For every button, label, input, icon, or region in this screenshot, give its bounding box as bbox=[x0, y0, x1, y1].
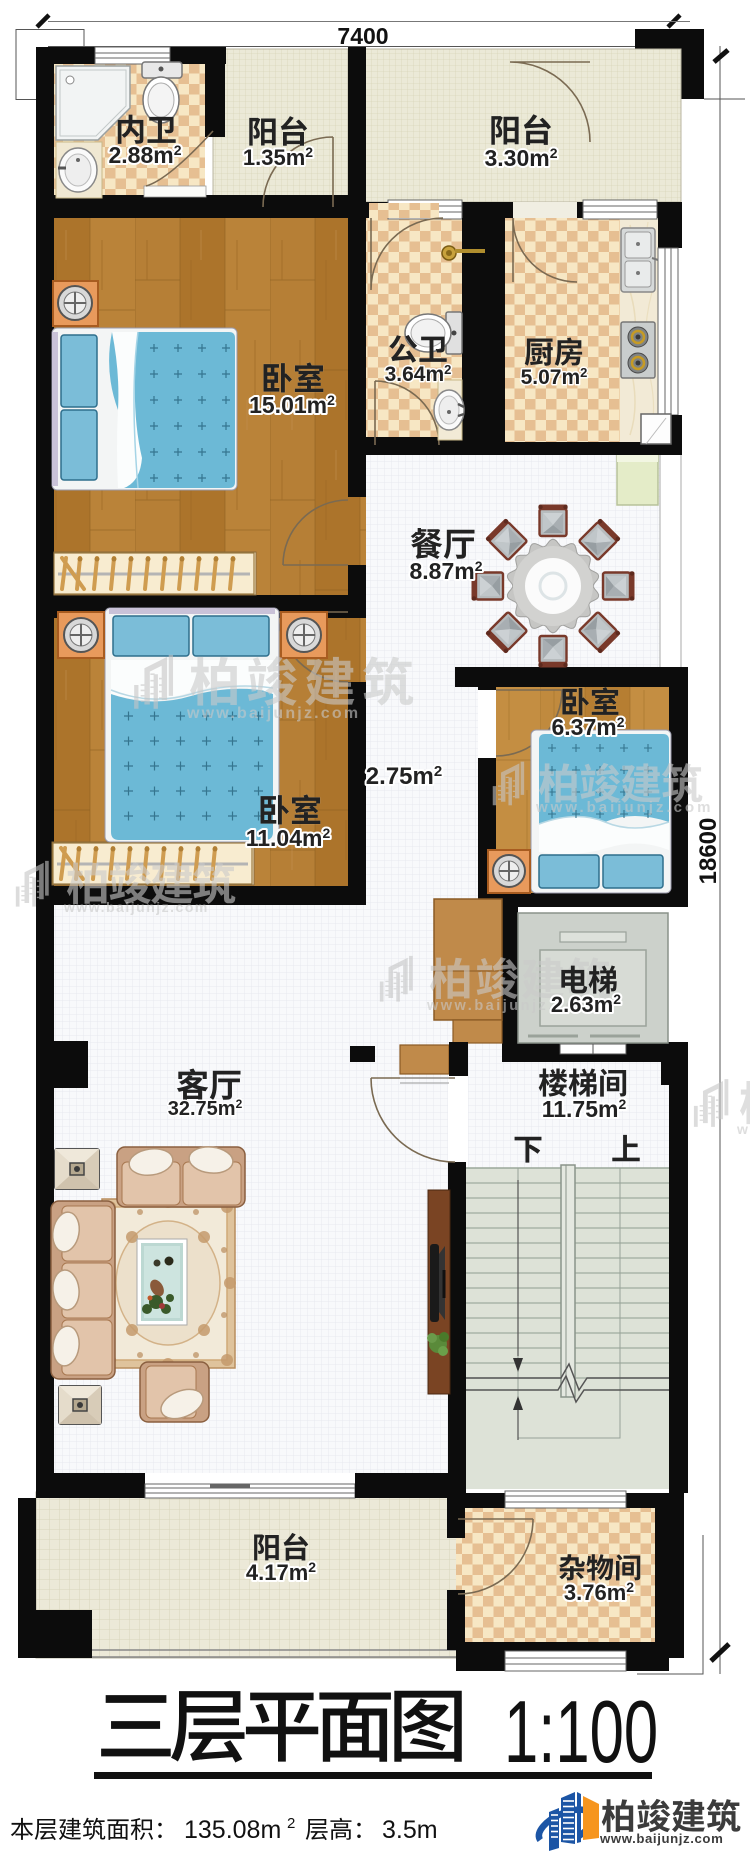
svg-text:www.baijunjz.com: www.baijunjz.com bbox=[63, 899, 209, 915]
svg-text:7400: 7400 bbox=[337, 23, 388, 49]
svg-text:3.64m2: 3.64m2 bbox=[385, 362, 452, 386]
svg-text:15.01m2: 15.01m2 bbox=[249, 392, 335, 418]
svg-text:www.baijunjz.com: www.baijunjz.com bbox=[535, 799, 713, 816]
svg-text:32.75m2: 32.75m2 bbox=[168, 1097, 243, 1120]
svg-text:135.08m: 135.08m bbox=[184, 1816, 281, 1844]
svg-text:3.5m: 3.5m bbox=[382, 1816, 438, 1844]
svg-text:2: 2 bbox=[287, 1815, 295, 1832]
svg-text:2.88m2: 2.88m2 bbox=[108, 142, 181, 168]
svg-text:www.baijunjz.com: www.baijunjz.com bbox=[736, 1121, 750, 1137]
svg-text:www.baijunjz.com: www.baijunjz.com bbox=[186, 705, 360, 722]
svg-text:3.76m2: 3.76m2 bbox=[564, 1579, 634, 1605]
svg-text:8.87m2: 8.87m2 bbox=[409, 558, 482, 584]
svg-text:5.07m2: 5.07m2 bbox=[521, 365, 588, 389]
svg-text:11.75m2: 11.75m2 bbox=[542, 1096, 627, 1122]
svg-text:1:100: 1:100 bbox=[504, 1683, 658, 1781]
svg-text:6.37m2: 6.37m2 bbox=[551, 714, 624, 740]
svg-text:11.04m2: 11.04m2 bbox=[246, 825, 331, 851]
svg-text:1.35m2: 1.35m2 bbox=[243, 144, 313, 170]
svg-text:3.30m2: 3.30m2 bbox=[484, 145, 557, 171]
svg-text:4.17m2: 4.17m2 bbox=[246, 1559, 316, 1585]
svg-text:18600: 18600 bbox=[695, 818, 722, 885]
svg-text:2.75m2: 2.75m2 bbox=[366, 763, 442, 790]
svg-text:2.63m2: 2.63m2 bbox=[551, 991, 621, 1017]
svg-text:www.baijunjz.com: www.baijunjz.com bbox=[599, 1831, 723, 1846]
